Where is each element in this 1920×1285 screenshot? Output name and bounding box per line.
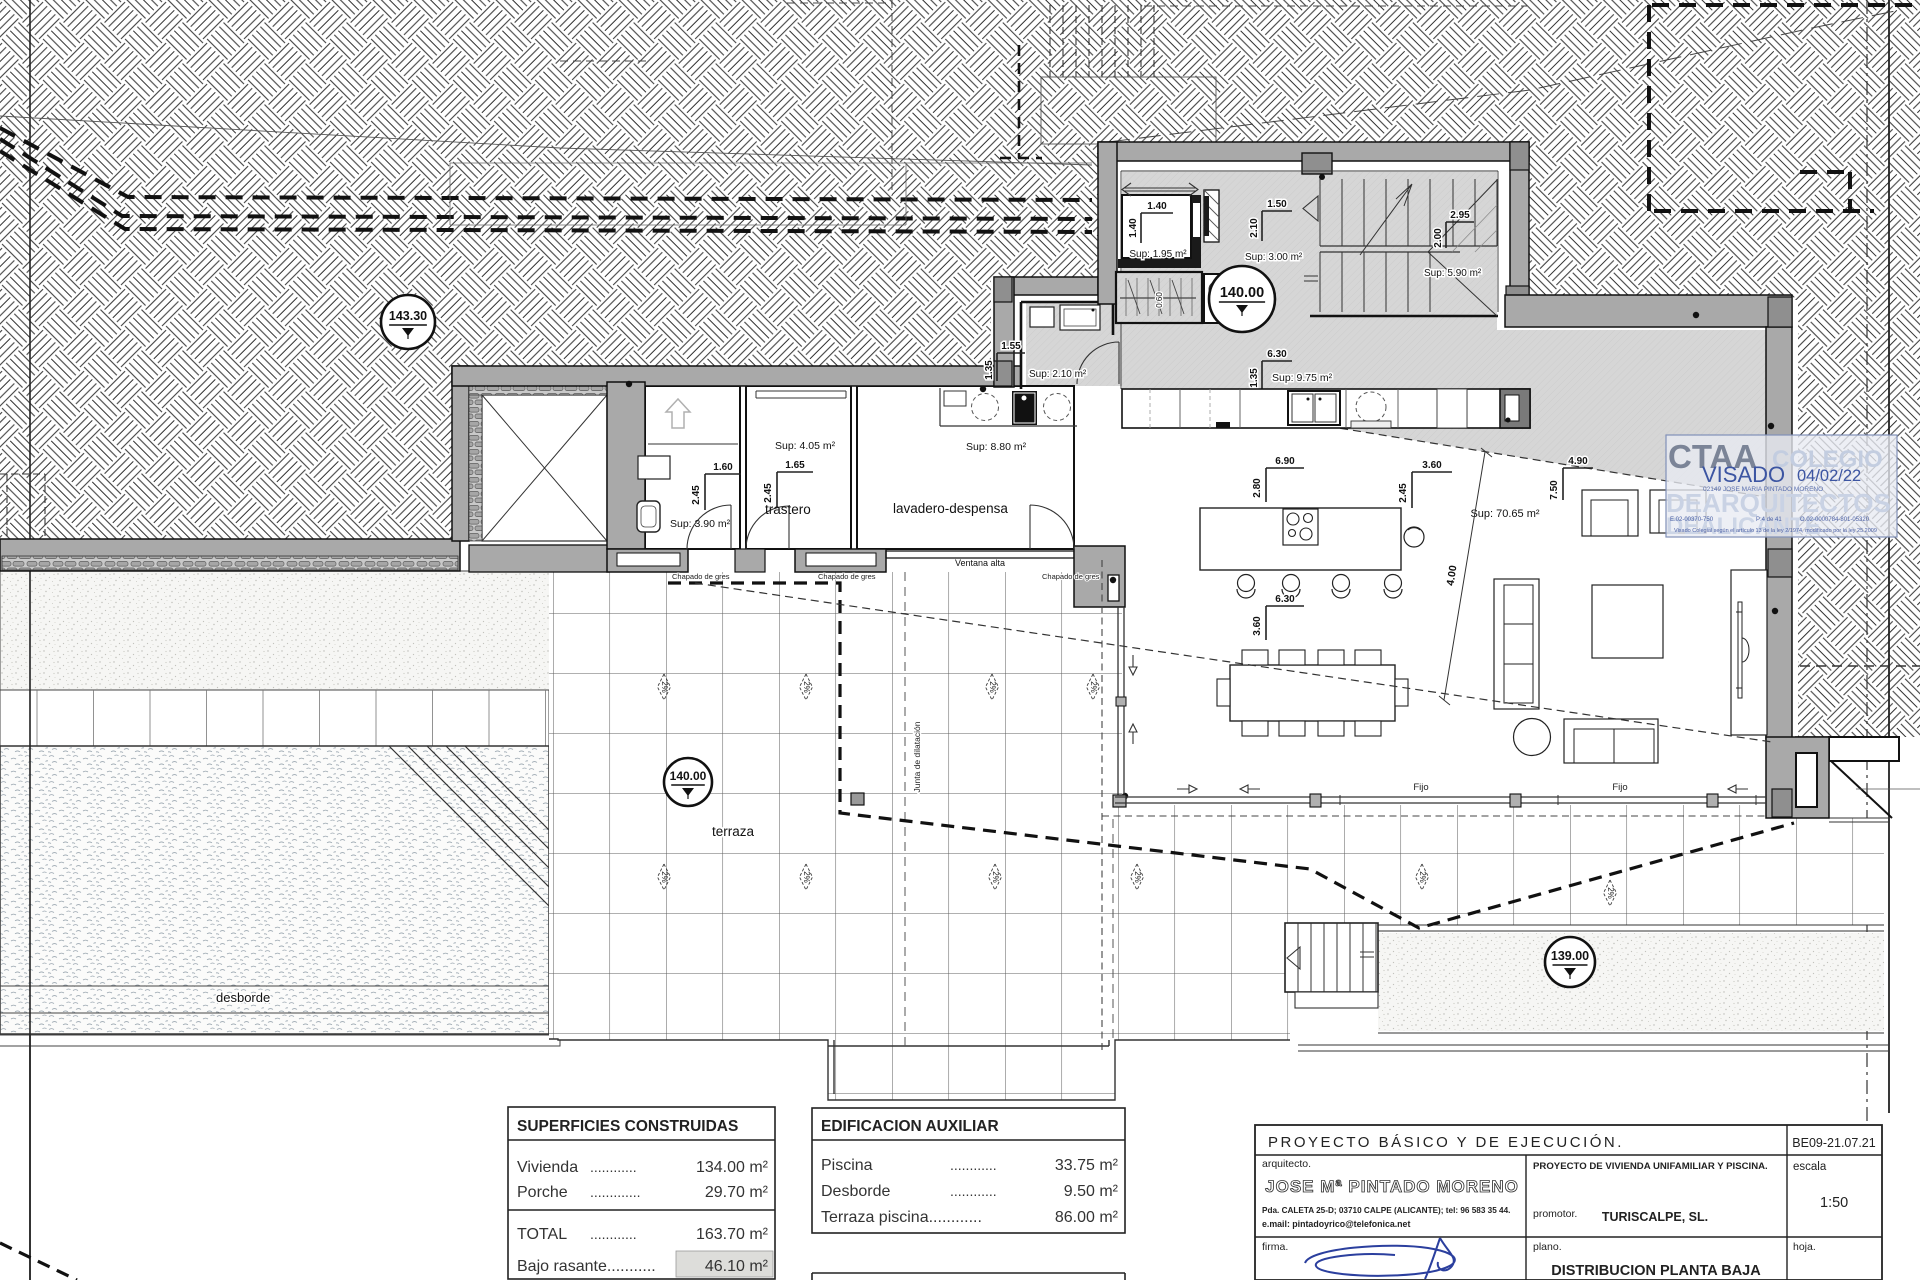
svg-text:1.35: 1.35: [984, 360, 995, 380]
svg-text:9.50 m²: 9.50 m²: [1064, 1183, 1119, 1200]
svg-text:plano.: plano.: [1533, 1241, 1562, 1253]
svg-text:Sup: 3.90 m²: Sup: 3.90 m²: [670, 518, 731, 530]
svg-text:2.45: 2.45: [763, 483, 774, 503]
svg-text:140.00: 140.00: [670, 769, 707, 783]
svg-text:139.00: 139.00: [1551, 949, 1589, 963]
svg-text:lavadero-despensa: lavadero-despensa: [893, 501, 1008, 516]
svg-text:............: ............: [590, 1226, 637, 1242]
svg-text:29.70 m²: 29.70 m²: [705, 1184, 769, 1201]
svg-text:P:4 de 41: P:4 de 41: [1756, 517, 1782, 523]
svg-text:O.02-0000784-801-05320: O.02-0000784-801-05320: [1800, 517, 1870, 523]
svg-text:Chapado de gres: Chapado de gres: [818, 572, 876, 581]
svg-text:3.60: 3.60: [1252, 616, 1263, 636]
svg-text:hoja.: hoja.: [1793, 1241, 1816, 1253]
svg-text:terraza: terraza: [712, 824, 755, 839]
svg-text:3.60: 3.60: [1422, 460, 1442, 471]
svg-text:2.00: 2.00: [1433, 228, 1444, 248]
svg-text:1:50: 1:50: [1820, 1195, 1848, 1211]
svg-text:TURISCALPE, SL.: TURISCALPE, SL.: [1602, 1210, 1708, 1224]
svg-text:2.10: 2.10: [1249, 218, 1260, 238]
svg-text:Sup: 1.95 m²: Sup: 1.95 m²: [1129, 249, 1187, 260]
svg-text:46.10 m²: 46.10 m²: [705, 1258, 769, 1275]
svg-text:Sup: 2.10 m²: Sup: 2.10 m²: [1029, 369, 1087, 380]
svg-text:PROYECTO DE VIVIENDA UNIFAMILI: PROYECTO DE VIVIENDA UNIFAMILIAR Y PISCI…: [1533, 1161, 1768, 1172]
svg-text:Visado Colegial según el artíc: Visado Colegial según el artículo 13 de …: [1674, 528, 1877, 534]
svg-text:1.65: 1.65: [785, 460, 805, 471]
svg-text:0.60: 0.60: [1155, 292, 1164, 308]
svg-text:6.90: 6.90: [1275, 456, 1295, 467]
svg-text:Fijo: Fijo: [1413, 782, 1428, 793]
svg-text:Chapado de gres: Chapado de gres: [1042, 572, 1100, 581]
svg-text:2.45: 2.45: [1398, 483, 1409, 503]
svg-text:Vivienda: Vivienda: [517, 1159, 578, 1176]
svg-text:............: ............: [590, 1159, 637, 1175]
svg-text:Desborde: Desborde: [821, 1183, 890, 1200]
svg-text:trastero: trastero: [765, 502, 811, 517]
svg-text:2%: 2%: [660, 871, 669, 883]
svg-text:6.30: 6.30: [1267, 349, 1287, 360]
svg-text:Bajo rasante...........: Bajo rasante...........: [517, 1258, 656, 1275]
svg-text:2%: 2%: [1606, 887, 1615, 899]
svg-text:2.95: 2.95: [1450, 210, 1470, 221]
svg-text:TOTAL: TOTAL: [517, 1226, 567, 1243]
svg-text:2%: 2%: [988, 681, 997, 693]
svg-text:e.mail: pintadoyrico@telefonic: e.mail: pintadoyrico@telefonica.net: [1262, 1219, 1410, 1229]
svg-text:SUPERFICIES CONSTRUIDAS: SUPERFICIES CONSTRUIDAS: [517, 1118, 738, 1135]
svg-text:.............: .............: [590, 1184, 641, 1200]
svg-text:2%: 2%: [1418, 871, 1427, 883]
svg-text:firma.: firma.: [1262, 1241, 1288, 1253]
svg-text:1.40: 1.40: [1128, 218, 1139, 238]
svg-text:Terraza piscina............: Terraza piscina............: [821, 1209, 982, 1226]
svg-text:Sup: 4.05 m²: Sup: 4.05 m²: [775, 440, 836, 452]
svg-text:promotor.: promotor.: [1533, 1208, 1577, 1220]
svg-text:04/02/22: 04/02/22: [1797, 467, 1861, 485]
svg-text:1.60: 1.60: [713, 462, 733, 473]
svg-text:33.75 m²: 33.75 m²: [1055, 1157, 1119, 1174]
svg-text:Junta de dilatación: Junta de dilatación: [912, 721, 922, 792]
svg-text:Sup: 8.80 m²: Sup: 8.80 m²: [966, 441, 1027, 453]
svg-text:163.70 m²: 163.70 m²: [696, 1226, 769, 1243]
svg-text:Sup: 5.90 m²: Sup: 5.90 m²: [1424, 268, 1482, 279]
svg-text:BE09-21.07.21: BE09-21.07.21: [1792, 1136, 1875, 1150]
svg-text:Sup: 70.65 m²: Sup: 70.65 m²: [1470, 508, 1539, 520]
svg-text:2%: 2%: [991, 871, 1000, 883]
svg-text:2.80: 2.80: [1252, 478, 1263, 498]
svg-text:2%: 2%: [660, 681, 669, 693]
svg-text:6.30: 6.30: [1275, 594, 1295, 605]
svg-text:1.40: 1.40: [1147, 201, 1167, 212]
svg-text:Pda. CALETA 25-D; 03710 CALPE: Pda. CALETA 25-D; 03710 CALPE (ALICANTE)…: [1262, 1206, 1510, 1215]
svg-text:2%: 2%: [1089, 681, 1098, 693]
svg-text:2%: 2%: [1133, 871, 1142, 883]
svg-text:1.50: 1.50: [1267, 199, 1287, 210]
svg-text:VISADO: VISADO: [1702, 462, 1785, 487]
svg-text:............: ............: [950, 1157, 997, 1173]
svg-text:Piscina: Piscina: [821, 1157, 873, 1174]
svg-text:140.00: 140.00: [1220, 285, 1264, 301]
svg-text:134.00 m²: 134.00 m²: [696, 1159, 769, 1176]
svg-text:Fijo: Fijo: [1612, 782, 1627, 793]
svg-text:1.35: 1.35: [1249, 368, 1260, 388]
svg-text:Sup: 3.00 m²: Sup: 3.00 m²: [1245, 252, 1303, 263]
svg-text:143.30: 143.30: [389, 309, 427, 323]
svg-text:E.02-00370-750: E.02-00370-750: [1670, 517, 1714, 523]
svg-text:PROYECTO BÁSICO Y DE EJECU: PROYECTO BÁSICO Y DE EJECUCIÓN.: [1268, 1134, 1624, 1151]
svg-text:desborde: desborde: [216, 990, 270, 1005]
svg-text:2.45: 2.45: [691, 485, 702, 505]
svg-text:Sup: 9.75 m²: Sup: 9.75 m²: [1272, 372, 1333, 384]
svg-text:2%: 2%: [802, 681, 811, 693]
svg-text:4.90: 4.90: [1568, 456, 1588, 467]
svg-text:Porche: Porche: [517, 1184, 568, 1201]
svg-text:JOSE Mª PINTADO MORENO: JOSE Mª PINTADO MORENO: [1265, 1177, 1519, 1196]
svg-text:escala: escala: [1793, 1161, 1827, 1173]
svg-text:2%: 2%: [802, 871, 811, 883]
svg-text:1.55: 1.55: [1001, 341, 1021, 352]
svg-text:Chapado de gres: Chapado de gres: [672, 572, 730, 581]
svg-text:arquitecto.: arquitecto.: [1262, 1158, 1311, 1170]
svg-text:7.50: 7.50: [1549, 480, 1560, 500]
svg-text:............: ............: [950, 1183, 997, 1199]
svg-text:EDIFICACION AUXILIAR: EDIFICACION AUXILIAR: [821, 1118, 999, 1135]
svg-text:DISTRIBUCION PLANTA BAJA: DISTRIBUCION PLANTA BAJA: [1551, 1263, 1761, 1279]
svg-text:86.00 m²: 86.00 m²: [1055, 1209, 1119, 1226]
svg-text:Ventana alta: Ventana alta: [955, 558, 1005, 568]
